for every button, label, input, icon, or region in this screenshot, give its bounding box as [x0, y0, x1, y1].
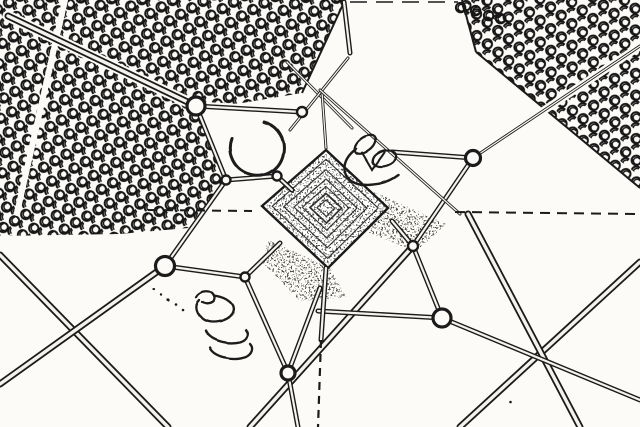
guy-anchor-node	[187, 97, 205, 115]
speck-dot	[160, 293, 162, 295]
speck-dot	[166, 297, 169, 300]
speck-dot	[175, 303, 178, 306]
wire-junction-node	[408, 241, 418, 251]
guy-anchor-node	[433, 309, 451, 327]
wire-junction-node	[273, 172, 282, 181]
edge-art-aerial-image	[0, 0, 640, 427]
wire-junction-node	[222, 176, 231, 185]
aerial-tower-line-art	[0, 0, 640, 427]
speck-dot	[182, 309, 185, 312]
guy-anchor-node	[281, 366, 295, 380]
speck-dot	[509, 402, 512, 405]
wire-junction-node	[297, 107, 307, 117]
guy-anchor-node	[156, 257, 175, 276]
guy-anchor-node	[466, 151, 481, 166]
speck-dot	[153, 288, 155, 290]
wire-junction-node	[241, 273, 250, 282]
